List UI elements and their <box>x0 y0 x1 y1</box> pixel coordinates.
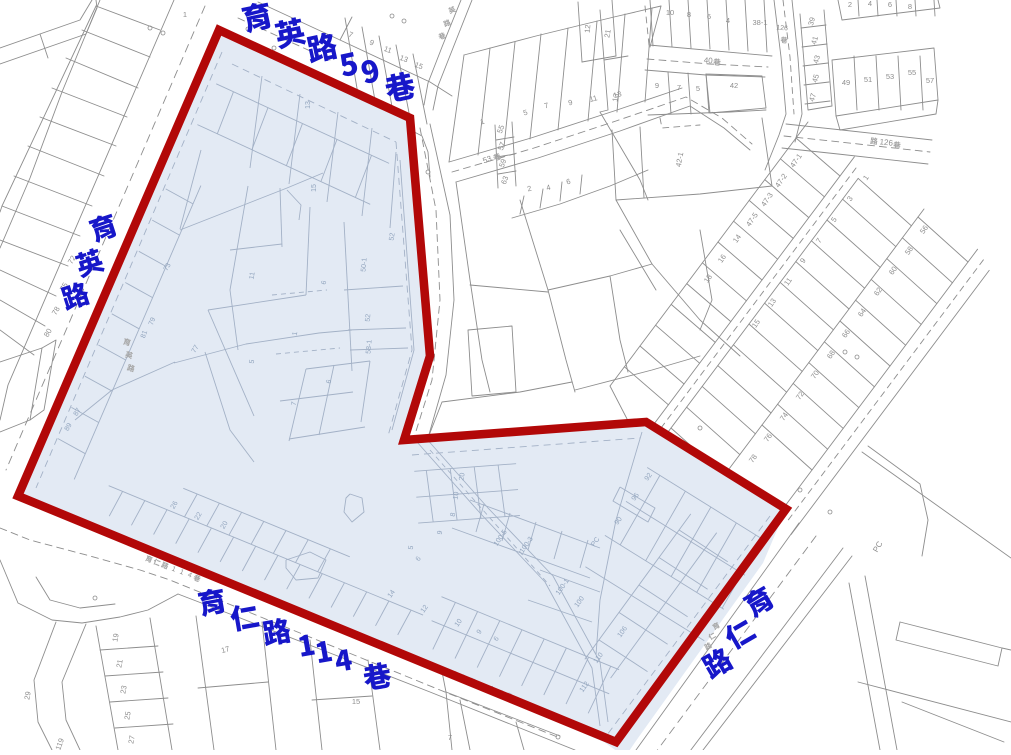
svg-text:15: 15 <box>352 697 360 706</box>
svg-text:57: 57 <box>926 76 934 85</box>
svg-text:5: 5 <box>696 84 700 93</box>
svg-text:126: 126 <box>879 137 894 147</box>
svg-text:52: 52 <box>388 232 396 241</box>
svg-text:10: 10 <box>666 8 674 17</box>
svg-text:49: 49 <box>842 78 850 87</box>
svg-text:27: 27 <box>126 735 136 745</box>
svg-text:11: 11 <box>248 271 256 279</box>
svg-text:9: 9 <box>655 81 659 90</box>
svg-text:126: 126 <box>776 25 788 33</box>
svg-text:13: 13 <box>305 101 312 109</box>
svg-text:6: 6 <box>888 0 892 9</box>
svg-text:38-1: 38-1 <box>752 18 767 27</box>
svg-text:50-1: 50-1 <box>360 257 368 272</box>
svg-text:52: 52 <box>365 314 373 322</box>
svg-text:19: 19 <box>110 633 120 643</box>
svg-text:40: 40 <box>703 56 713 66</box>
svg-text:42: 42 <box>730 81 738 90</box>
svg-text:21: 21 <box>114 659 124 669</box>
svg-text:20: 20 <box>458 472 466 481</box>
svg-text:8: 8 <box>687 10 691 19</box>
svg-text:15: 15 <box>311 184 318 192</box>
svg-text:55: 55 <box>908 68 916 77</box>
svg-text:4: 4 <box>868 0 872 8</box>
svg-text:53: 53 <box>886 72 894 81</box>
svg-text:7: 7 <box>448 733 452 742</box>
svg-text:23: 23 <box>118 685 128 695</box>
svg-text:12: 12 <box>583 24 593 33</box>
svg-text:2: 2 <box>848 0 852 9</box>
svg-text:8: 8 <box>908 2 912 11</box>
svg-text:1: 1 <box>183 10 187 19</box>
svg-text:29: 29 <box>22 691 32 701</box>
svg-text:21: 21 <box>602 29 612 39</box>
svg-text:13: 13 <box>610 93 620 103</box>
svg-text:25: 25 <box>122 711 132 721</box>
svg-text:7: 7 <box>677 83 681 92</box>
svg-text:4: 4 <box>726 16 730 25</box>
svg-text:51: 51 <box>864 75 872 84</box>
svg-text:6: 6 <box>707 12 711 21</box>
svg-text:58-1: 58-1 <box>365 339 373 354</box>
svg-text:10: 10 <box>452 491 460 500</box>
